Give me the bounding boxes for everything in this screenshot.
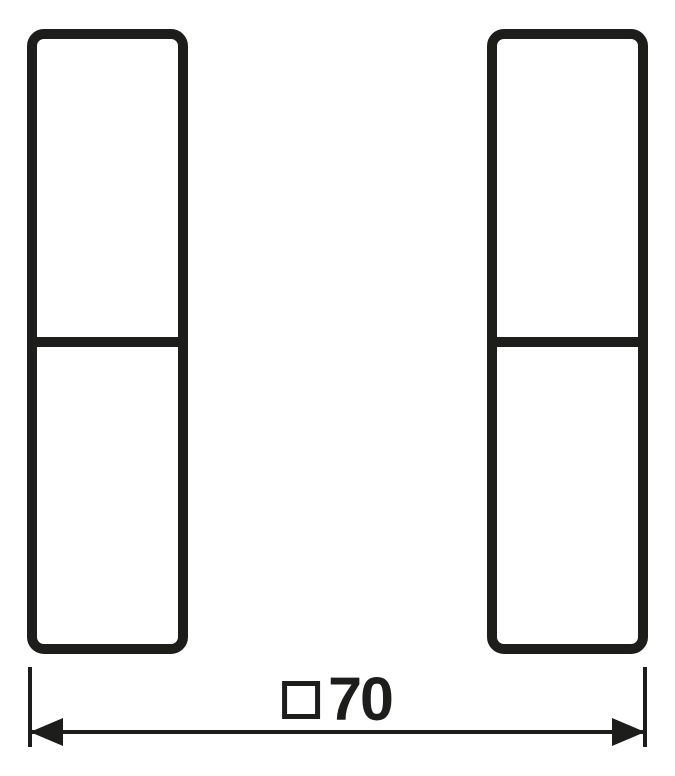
- dimension-label: 70: [282, 669, 392, 730]
- left-rocker-outline: [27, 29, 188, 654]
- dimension-value: 70: [328, 669, 392, 730]
- arrowhead-left-icon: [30, 718, 63, 746]
- arrowhead-right-icon: [612, 718, 645, 746]
- right-rocker-outline: [487, 29, 648, 654]
- square-symbol-icon: [282, 681, 320, 719]
- right-rocker-center-divider: [496, 337, 639, 347]
- dimension-drawing: 70: [0, 0, 675, 776]
- left-rocker-center-divider: [36, 337, 179, 347]
